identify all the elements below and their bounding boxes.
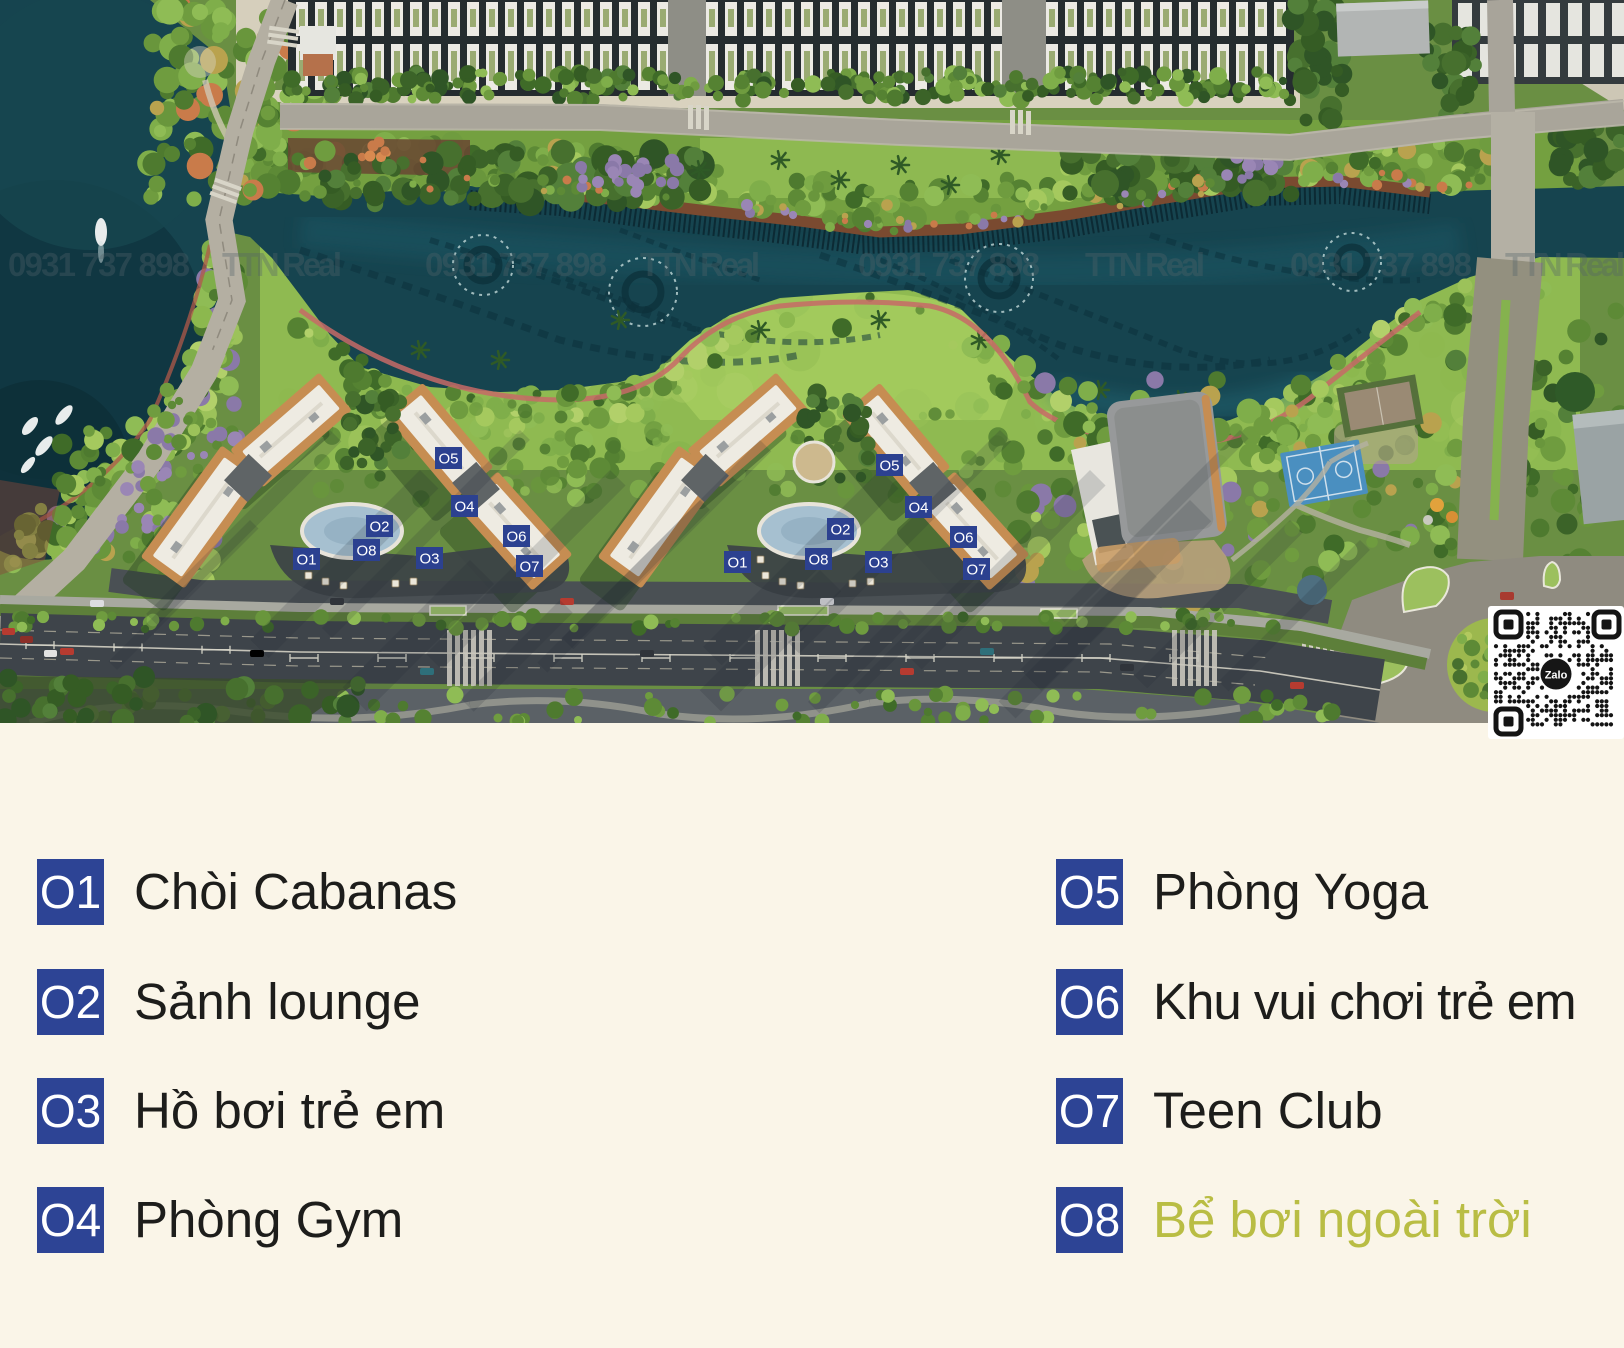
svg-text:O6: O6 [953,530,973,547]
svg-text:Zalo: Zalo [1545,670,1568,682]
svg-text:O5: O5 [438,451,458,468]
svg-text:0931 737 898: 0931 737 898 [8,246,190,283]
svg-text:0931 737 898: 0931 737 898 [425,246,607,283]
svg-text:O6: O6 [506,529,526,546]
svg-text:0931 737 898: 0931 737 898 [1290,246,1472,283]
svg-text:TTN Real: TTN Real [1505,246,1624,283]
svg-text:O1: O1 [296,552,316,569]
svg-text:O4: O4 [454,499,474,516]
svg-text:O5: O5 [879,458,899,475]
svg-text:O7: O7 [966,562,986,579]
svg-text:O3: O3 [419,551,439,568]
svg-text:O7: O7 [519,559,539,576]
svg-text:O2: O2 [369,519,389,536]
svg-text:O3: O3 [868,555,888,572]
svg-text:O8: O8 [356,543,376,560]
svg-text:TTN Real: TTN Real [640,246,760,283]
svg-text:O4: O4 [908,500,928,517]
svg-text:O2: O2 [830,522,850,539]
svg-text:TTN Real: TTN Real [1085,246,1205,283]
svg-text:TTN Real: TTN Real [222,246,342,283]
svg-text:0931 737 898: 0931 737 898 [858,246,1040,283]
svg-text:O8: O8 [808,552,828,569]
svg-text:O1: O1 [727,555,747,572]
